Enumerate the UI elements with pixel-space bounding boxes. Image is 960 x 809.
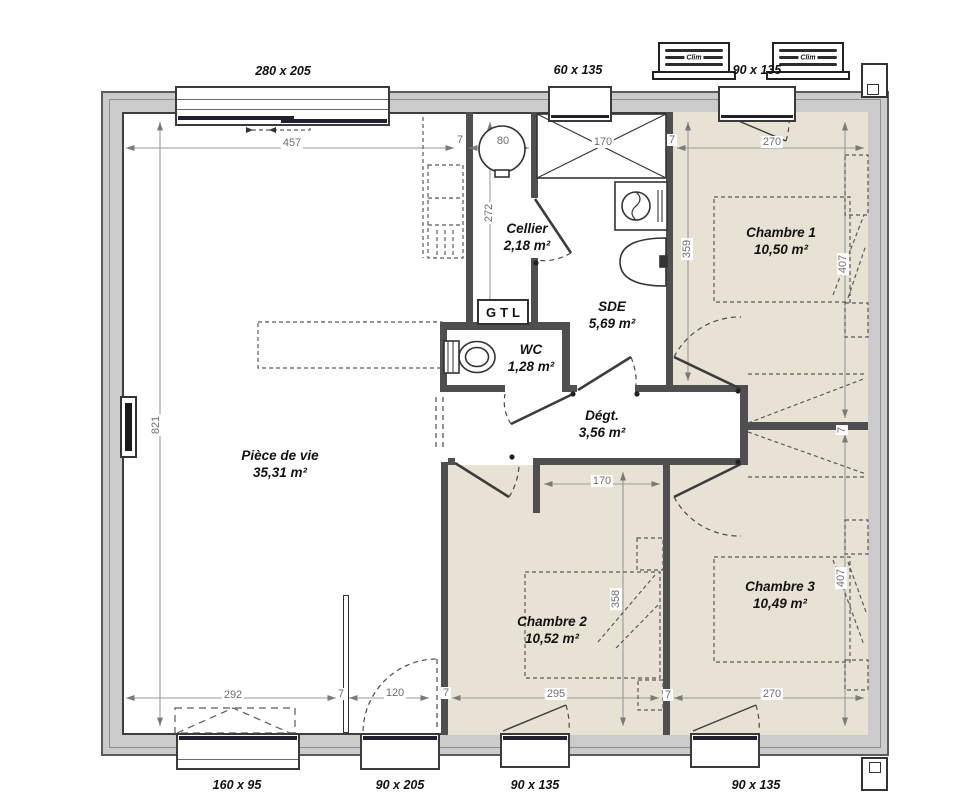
opening-label-160x95: 160 x 95 — [213, 778, 262, 792]
wardrobe-chambre3-a — [845, 520, 868, 554]
swing-window-b2 — [756, 705, 759, 731]
room-label-chambre2: Chambre 2 10,52 m² — [517, 613, 587, 647]
dim-295: 295 — [545, 688, 567, 700]
partition-stub — [343, 595, 349, 733]
window-90x135-b1 — [500, 733, 570, 768]
door-leaf-sde — [578, 357, 631, 390]
sink-tap — [660, 256, 667, 267]
opening-label-90x135-b2: 90 x 135 — [732, 778, 781, 792]
opening-label-90x205: 90 x 205 — [376, 778, 425, 792]
door-leaf-chambre1 — [674, 357, 741, 389]
fixtures — [444, 114, 667, 373]
entrance-door-90x205 — [360, 733, 440, 770]
dim-821: 821 — [150, 414, 162, 436]
water-heater-base — [495, 170, 509, 177]
dim-170-mid: 170 — [591, 475, 613, 487]
window-280x205 — [175, 86, 390, 126]
casement-leaf-window-b2 — [693, 705, 756, 731]
clim-unit-icon-2: Clim — [772, 42, 844, 73]
wardrobe-chambre3-b — [845, 660, 868, 690]
swing-sde — [631, 357, 636, 385]
window-160x95 — [176, 733, 300, 770]
dim-120: 120 — [384, 687, 406, 699]
toilet-cistern — [444, 341, 459, 373]
dim-272: 272 — [483, 202, 495, 224]
swing-chambre3 — [674, 497, 741, 536]
dim-7-top-b: 7 — [667, 134, 677, 146]
casement-leaf-window-b1 — [503, 705, 566, 731]
clim-label-2: Clim — [798, 54, 817, 61]
room-label-wc: WC 1,28 m² — [508, 341, 555, 375]
clim-unit-icon-1: Clim — [658, 42, 730, 73]
opening-label-60x135: 60 x 135 — [554, 63, 603, 77]
door-leaf-wc — [511, 393, 575, 424]
gtl-box: GTL — [477, 299, 529, 325]
room-label-degt: Dégt. 3,56 m² — [579, 407, 626, 441]
dimension-lines — [126, 122, 864, 726]
swing-wc — [504, 394, 511, 424]
utility-box-bottom-right — [861, 757, 888, 791]
dim-292: 292 — [222, 689, 244, 701]
dim-407-ch3: 407 — [835, 567, 847, 589]
plan-linework — [0, 0, 960, 809]
dim-7-bot-c: 7 — [663, 689, 673, 701]
wardrobe-chambre2-b — [638, 680, 663, 710]
room-label-chambre3: Chambre 3 10,49 m² — [745, 578, 815, 612]
room-label-chambre1: Chambre 1 10,50 m² — [746, 224, 816, 258]
swing-chambre1 — [674, 317, 741, 357]
window-160-swing-box — [175, 708, 295, 733]
kitchen-island — [258, 322, 442, 368]
wardrobe-chambre1-a — [845, 155, 868, 215]
swing-chambre2 — [509, 464, 519, 497]
dim-80: 80 — [495, 135, 511, 147]
dim-358: 358 — [610, 588, 622, 610]
water-heater-icon — [479, 126, 525, 172]
dim-7-bot-b: 7 — [441, 687, 451, 699]
dim-7-top-a: 7 — [455, 134, 465, 146]
door-leaf-chambre2 — [455, 463, 509, 497]
opening-label-90x135-b1: 90 x 135 — [511, 778, 560, 792]
utility-box-top-right — [861, 63, 888, 98]
dim-457: 457 — [281, 137, 303, 149]
electrical-panel-icon — [120, 396, 137, 458]
bathroom-sink-icon — [620, 238, 666, 286]
wardrobe-chambre2-a — [637, 538, 663, 570]
room-label-piece-de-vie: Pièce de vie 35,31 m² — [241, 447, 318, 481]
dim-7-wall: 7 — [836, 425, 848, 435]
dim-7-bot-a: 7 — [336, 688, 346, 700]
window-60x135 — [548, 86, 612, 122]
opening-label-90x135-top: 90 x 135 — [733, 63, 782, 77]
dim-270-bot: 270 — [761, 688, 783, 700]
window-90x135-top — [718, 86, 796, 122]
door-leaf-chambre3 — [674, 464, 741, 497]
clim-label-1: Clim — [684, 54, 703, 61]
floor-plan: Clim Clim GTL Pièce de vie 35,31 m² Cell… — [0, 0, 960, 809]
opening-label-280x205: 280 x 205 — [255, 64, 311, 78]
room-label-sde: SDE 5,69 m² — [589, 298, 636, 332]
toilet-bowl — [466, 348, 489, 367]
dim-359: 359 — [681, 238, 693, 260]
dim-407-ch1: 407 — [837, 253, 849, 275]
window-90x135-b2 — [690, 733, 760, 768]
swing-window-b1 — [566, 705, 569, 731]
window-160-swing-v — [177, 708, 290, 733]
room-label-cellier: Cellier 2,18 m² — [504, 220, 551, 254]
wardrobe-chambre1-b — [845, 303, 868, 337]
dim-270-top: 270 — [761, 136, 783, 148]
swing-cellier — [537, 253, 571, 261]
dim-170-top: 170 — [592, 136, 614, 148]
